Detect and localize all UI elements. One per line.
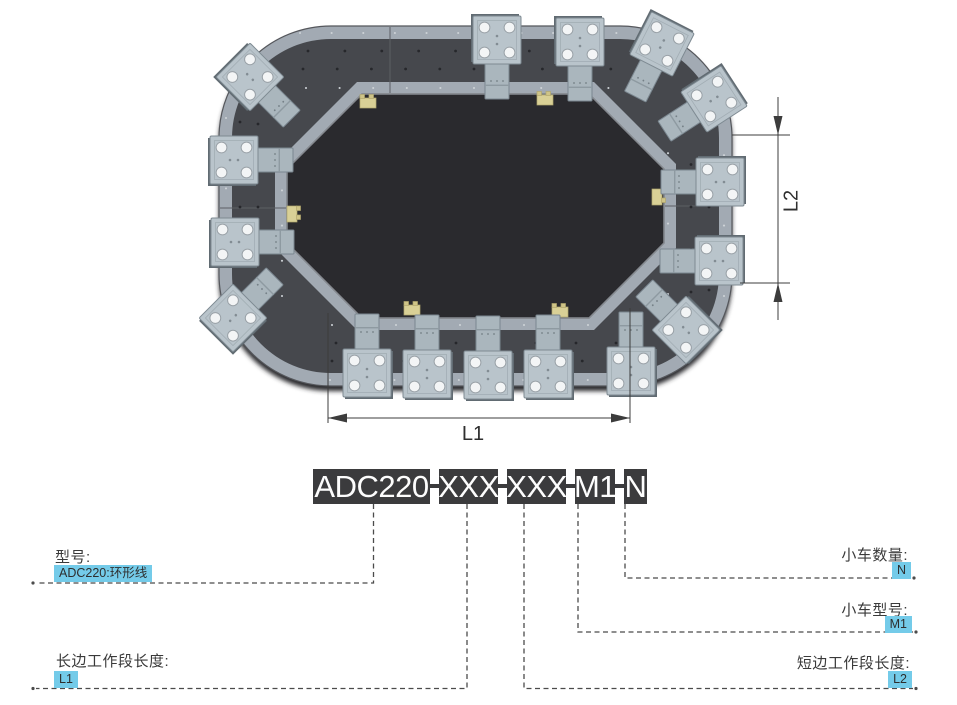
bolt-dot [281, 260, 283, 262]
bolt-dot [454, 50, 457, 53]
bolt-dot [439, 87, 441, 89]
bolt-dot [607, 87, 609, 89]
bolt-dot [438, 68, 441, 71]
bolt-dot [302, 68, 305, 71]
bolt-dot [406, 87, 408, 89]
cart-count-value-chip: N [892, 562, 911, 579]
bolt-dot [587, 379, 589, 381]
bolt-dot [380, 50, 383, 53]
bolt-dot [667, 223, 669, 225]
bolt-dot [690, 163, 693, 166]
bolt-dot [540, 87, 542, 89]
bolt-dot [587, 324, 589, 326]
bolt-dot [541, 68, 544, 71]
ring-track-illustration: L1 L2 [0, 0, 957, 705]
model-code-segment-length-l2: XXX [507, 469, 566, 504]
bolt-dot [362, 32, 364, 34]
bolt-dot [459, 324, 461, 326]
bolt-dot [281, 295, 283, 297]
bolt-dot [239, 121, 242, 124]
bolt-dot [305, 87, 307, 89]
bolt-dot [335, 342, 338, 345]
bolt-dot [225, 117, 227, 119]
bolt-dot [394, 32, 396, 34]
dimension-l1-label: L1 [462, 423, 484, 445]
bolt-dot [615, 342, 618, 345]
dimension-l2-label: L2 [781, 190, 803, 212]
bolt-dot [257, 123, 260, 126]
model-label: 型号: [55, 546, 91, 567]
bolt-dot [329, 379, 331, 381]
model-code-segment-length-l1: XXX [439, 469, 498, 504]
bolt-dot [331, 32, 333, 34]
model-value-chip: ADC220:环形线 [54, 565, 152, 582]
bolt-dot [473, 68, 476, 71]
bolt-dot [225, 187, 227, 189]
bolt-dot [473, 87, 475, 89]
cart-model-value-chip: M1 [885, 616, 912, 633]
bolt-dot [281, 189, 283, 191]
bolt-dot [331, 360, 334, 363]
model-code-segment-series: ADC220 [313, 469, 430, 504]
long-side-value-chip: L1 [54, 671, 78, 688]
bolt-dot [331, 324, 333, 326]
bolt-dot [723, 295, 725, 297]
model-code-segment-cart-count: N [624, 469, 647, 504]
bolt-dot [343, 50, 346, 53]
long-side-label: 长边工作段长度: [56, 650, 169, 671]
bolt-dot [336, 68, 339, 71]
bolt-dot [581, 360, 584, 363]
bolt-dot [723, 225, 725, 227]
bolt-dot [457, 32, 459, 34]
short-side-label: 短边工作段长度: [797, 652, 910, 673]
model-code-separator [615, 484, 624, 488]
bolt-dot [257, 206, 260, 209]
bolt-dot [575, 342, 578, 345]
bolt-dot [609, 68, 612, 71]
bolt-dot [239, 206, 242, 209]
bolt-dot [690, 291, 693, 294]
leader-end-dots [31, 576, 917, 690]
bolt-dot [528, 50, 531, 53]
product-spec-sheet: L1 L2 ADC220 XXX XXX M1 N 型号: ADC220:环形线… [0, 0, 957, 705]
bolt-dot [393, 379, 395, 381]
bolt-dot [690, 206, 693, 209]
bolt-dot [667, 152, 669, 154]
bolt-dot [458, 379, 460, 381]
bolt-dot [417, 50, 420, 53]
bolt-dot [307, 50, 310, 53]
bolt-dot [281, 225, 283, 227]
bolt-dot [395, 324, 397, 326]
bolt-dot [523, 324, 525, 326]
bolt-dot [615, 32, 617, 34]
bolt-dot [708, 289, 711, 292]
bolt-dot [372, 87, 374, 89]
bolt-dot [299, 32, 301, 34]
model-code-segment-cart-model: M1 [575, 469, 615, 504]
bolt-dot [339, 87, 341, 89]
bolt-dot [723, 154, 725, 156]
bolt-dot [552, 32, 554, 34]
bolt-dot [404, 68, 407, 71]
bolt-dot [455, 342, 458, 345]
bolt-dot [370, 68, 373, 71]
short-side-value-chip: L2 [888, 671, 912, 688]
bolt-dot [425, 32, 427, 34]
